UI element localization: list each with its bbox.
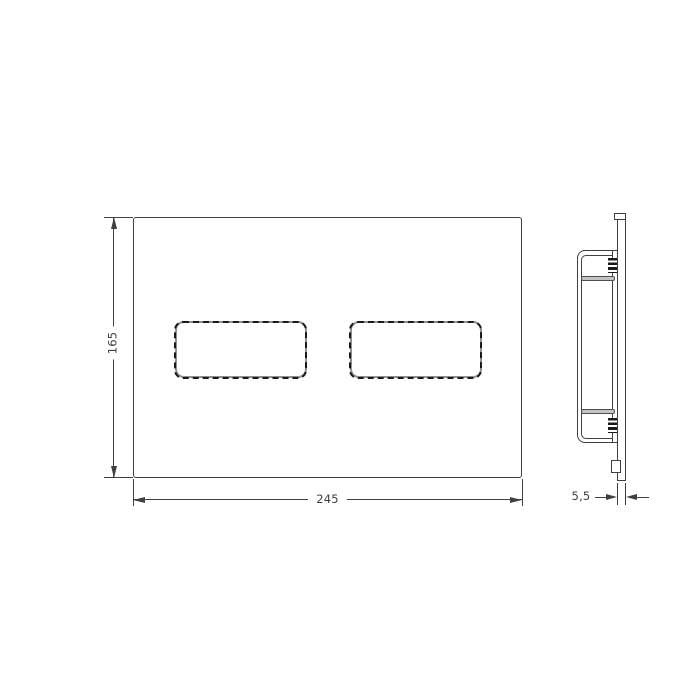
flush-button-right <box>350 321 482 378</box>
dim-label-width: 245 <box>308 492 347 507</box>
dim-arrow-right <box>510 497 522 503</box>
flush-button-left-dashed-outline <box>174 321 307 379</box>
side-view-crossbar-top <box>581 276 615 281</box>
dim-arrow-left <box>133 497 145 503</box>
flush-button-left <box>175 321 307 378</box>
dim-label-thickness: 5,5 <box>568 490 594 504</box>
extension-line-top <box>104 217 133 218</box>
dim-tail-right <box>637 497 649 498</box>
technical-drawing: 165 245 5,5 <box>0 0 700 700</box>
flush-button-right-dashed-outline <box>349 321 482 379</box>
side-view-crossbar-bottom <box>581 409 615 414</box>
dim-arrow-thickness-left <box>606 494 617 500</box>
dim-arrow-down <box>111 466 117 478</box>
dim-arrow-up <box>111 217 117 229</box>
dim-arrow-thickness-right <box>626 494 637 500</box>
dim-label-height: 165 <box>106 327 122 360</box>
side-view-plate-bottom-clip <box>611 460 621 473</box>
front-view-plate-outline <box>133 217 522 478</box>
extension-line-bottom <box>104 477 133 478</box>
side-view-plate-profile <box>617 215 626 481</box>
side-view-plate-top-cap <box>614 213 627 220</box>
